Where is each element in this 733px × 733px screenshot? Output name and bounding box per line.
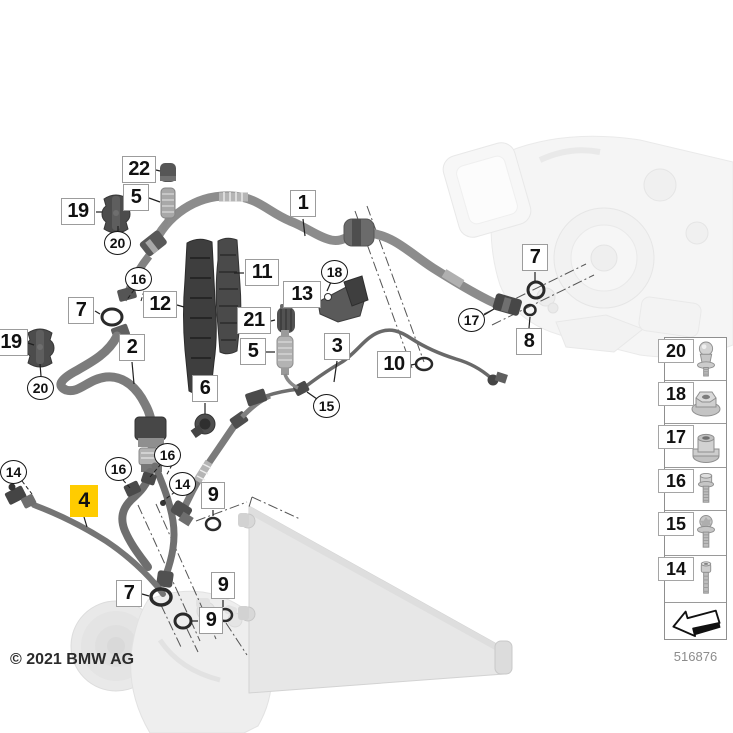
callout-5-top[interactable]: 5: [123, 184, 149, 211]
callout-14-mid[interactable]: 14: [169, 472, 196, 496]
copyright-notice: © 2021 BMW AG: [10, 651, 134, 669]
callout-15[interactable]: 15: [313, 394, 340, 418]
callout-9-right[interactable]: 9: [211, 572, 235, 599]
legend-number: 16: [658, 469, 694, 493]
pressure-sensor-6: [191, 414, 215, 438]
parts-diagram: 22 5 19 20 16 7 12 11 1 2 19 20 18 13 21…: [0, 0, 733, 733]
callout-8[interactable]: 8: [516, 328, 542, 355]
legend-item-14[interactable]: 14: [665, 556, 726, 603]
legend-item-15[interactable]: 15: [665, 511, 726, 556]
callout-21[interactable]: 21: [237, 307, 271, 334]
hex-flange-bolt-icon: [689, 469, 723, 509]
callout-16-lower-mid[interactable]: 16: [154, 443, 181, 467]
o-ring-7-upper: [102, 309, 122, 325]
legend-number: 15: [658, 512, 694, 536]
o-ring-9-upper: [206, 518, 220, 530]
torx-flange-screw-icon: [689, 512, 723, 554]
legend-number: 17: [658, 425, 694, 449]
callout-19-top[interactable]: 19: [61, 198, 95, 225]
callout-4-highlighted[interactable]: 4: [70, 485, 98, 517]
driving-direction-arrow-icon: [668, 605, 724, 637]
callout-2[interactable]: 2: [119, 334, 145, 361]
diagram-artwork: [0, 0, 733, 733]
callout-19-left[interactable]: 19: [0, 329, 28, 356]
callout-7-bottom[interactable]: 7: [116, 580, 142, 607]
callout-16-lower-left[interactable]: 16: [105, 457, 132, 481]
dryer-5: [277, 336, 293, 368]
legend-item-17[interactable]: 17: [665, 424, 726, 468]
callout-9-upper[interactable]: 9: [201, 482, 225, 509]
callout-12[interactable]: 12: [143, 291, 177, 318]
callout-11[interactable]: 11: [245, 259, 279, 286]
callout-7-upper[interactable]: 7: [68, 297, 94, 324]
callout-10[interactable]: 10: [377, 351, 411, 378]
legend-arrow-cell: [665, 603, 726, 639]
diagram-number: 516876: [664, 649, 727, 664]
callout-17[interactable]: 17: [458, 308, 485, 332]
condenser-faded: [238, 506, 512, 693]
legend-item-18[interactable]: 18: [665, 381, 726, 424]
callout-18[interactable]: 18: [321, 260, 348, 284]
legend-number: 20: [658, 339, 694, 363]
valve-5: [161, 188, 175, 218]
legend-number: 18: [658, 382, 694, 406]
callout-9-bottom[interactable]: 9: [199, 607, 223, 634]
callout-7-engine[interactable]: 7: [522, 244, 548, 271]
fasteners-legend: 20 18 17: [664, 337, 727, 640]
legend-item-16[interactable]: 16: [665, 468, 726, 511]
callout-1[interactable]: 1: [290, 190, 316, 217]
cheese-head-screw-icon: [689, 557, 723, 601]
callout-20-top[interactable]: 20: [104, 231, 131, 255]
callout-16-top[interactable]: 16: [125, 267, 152, 291]
callout-20-left[interactable]: 20: [27, 376, 54, 400]
ball-stud-icon: [689, 339, 723, 379]
callout-22[interactable]: 22: [122, 156, 156, 183]
clamp-19-left: [26, 329, 54, 367]
callout-6[interactable]: 6: [192, 375, 218, 402]
o-ring-10: [416, 358, 432, 370]
legend-number: 14: [658, 557, 694, 581]
callout-5-mid[interactable]: 5: [240, 338, 266, 365]
callout-14-left[interactable]: 14: [0, 460, 27, 484]
callout-13[interactable]: 13: [283, 281, 321, 308]
legend-item-20[interactable]: 20: [665, 338, 726, 381]
callout-3[interactable]: 3: [324, 333, 350, 360]
